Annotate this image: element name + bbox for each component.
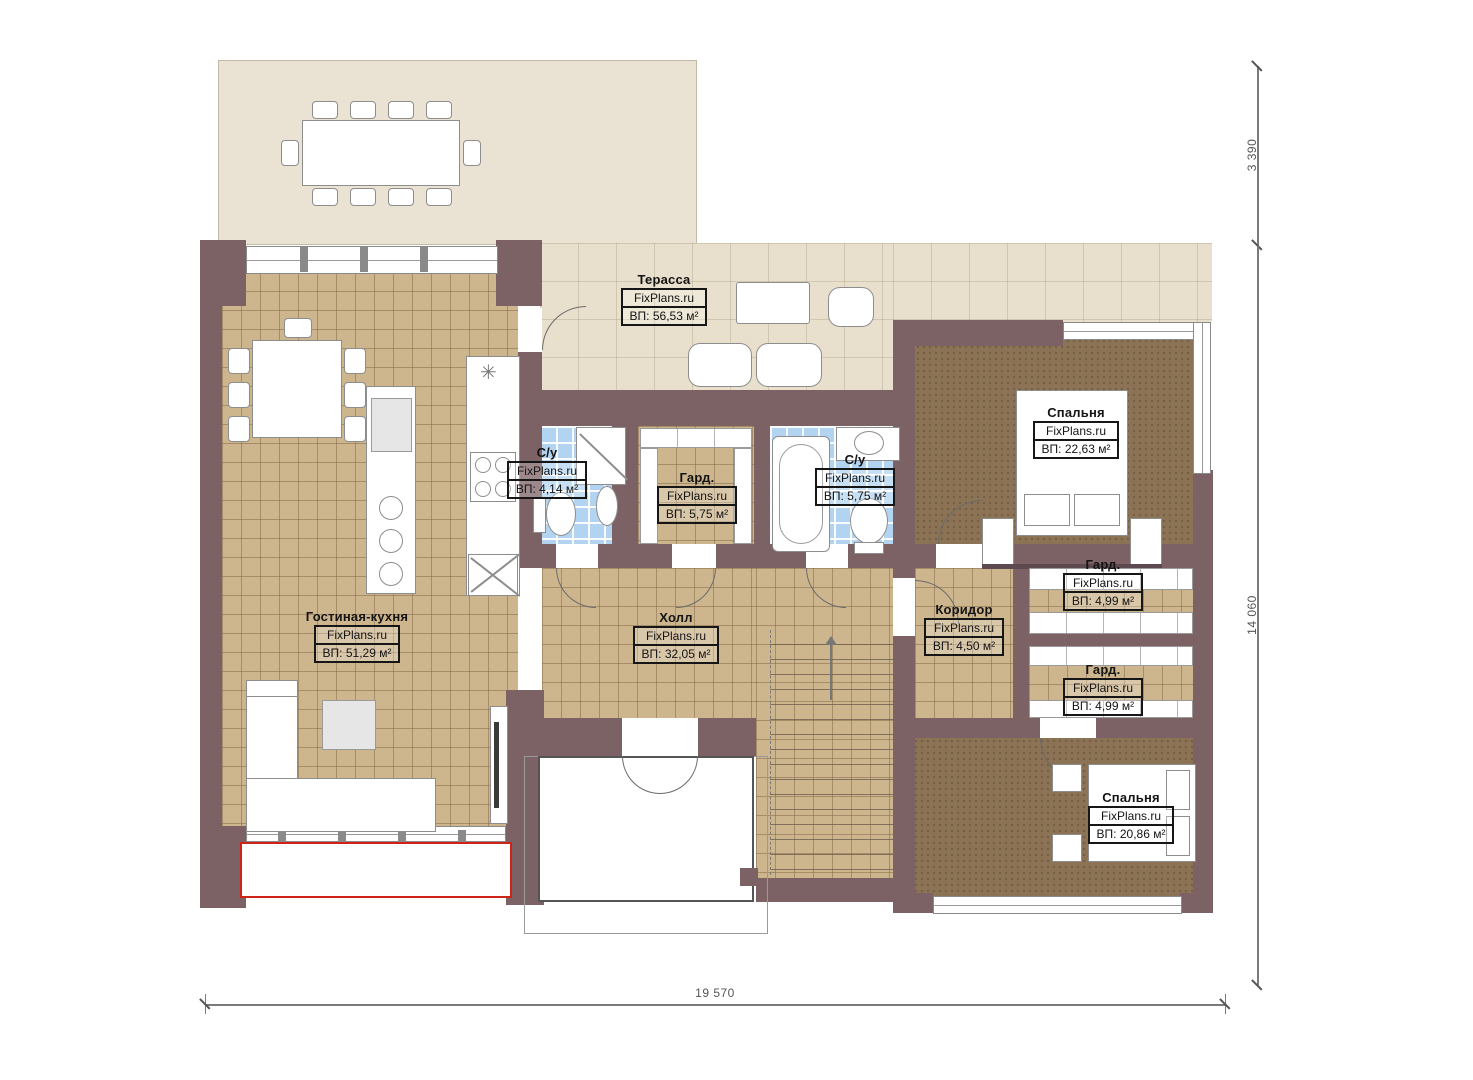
- wall: [893, 320, 1063, 346]
- island-sink: [379, 529, 403, 553]
- room-area: ВП: 22,63 м²: [1035, 441, 1118, 457]
- room-info-box: FixPlans.ru ВП: 4,50 м²: [924, 618, 1004, 656]
- stair-arrow-head: [825, 636, 837, 645]
- deck-chair: [426, 101, 452, 119]
- room-area: ВП: 20,86 м²: [1090, 826, 1173, 842]
- room-name: С/у: [501, 445, 593, 460]
- window-post: [360, 246, 368, 272]
- dimension-line-horizontal: [205, 1004, 1225, 1006]
- burner: [475, 457, 491, 473]
- room-name: Гард.: [648, 470, 746, 485]
- sofa-horizontal: [246, 778, 436, 832]
- x-mark: [471, 557, 521, 596]
- deck-chair: [312, 101, 338, 119]
- window-post: [300, 246, 308, 272]
- island-sink: [379, 496, 403, 520]
- room-name: Гостиная-кухня: [293, 609, 421, 624]
- staircase: [770, 630, 893, 875]
- x-mark: [471, 553, 521, 592]
- room-info-box: FixPlans.ru ВП: 5,75 м²: [815, 468, 895, 506]
- window-post: [420, 246, 428, 272]
- deck-chair: [312, 188, 338, 206]
- terrace-floor: [893, 243, 1212, 322]
- highlighted-window: [240, 842, 512, 898]
- deck-chair: [463, 140, 481, 166]
- window: [933, 896, 1182, 914]
- wall: [756, 878, 893, 902]
- room-label-wardrobe2: Гард. FixPlans.ru ВП: 4,99 м²: [1056, 662, 1150, 716]
- room-area: ВП: 4,50 м²: [926, 638, 1002, 654]
- watermark: FixPlans.ru: [316, 627, 399, 645]
- wall: [1029, 634, 1195, 646]
- room-label-hall: Холл FixPlans.ru ВП: 32,05 м²: [622, 610, 730, 664]
- watermark: FixPlans.ru: [509, 463, 585, 481]
- dining-chair: [228, 416, 250, 442]
- room-area: ВП: 51,29 м²: [316, 645, 399, 661]
- pillow: [1074, 494, 1120, 526]
- wall: [200, 240, 222, 908]
- deck-chair: [388, 101, 414, 119]
- terrace-seat: [756, 343, 822, 387]
- porch-post: [740, 868, 758, 886]
- wall: [893, 893, 933, 913]
- watermark: FixPlans.ru: [623, 290, 706, 308]
- room-name: Гард.: [1056, 662, 1150, 677]
- watermark: FixPlans.ru: [635, 628, 718, 646]
- window: [1193, 322, 1211, 474]
- deck-dining-table: [302, 120, 460, 186]
- room-name: Спальня: [1021, 405, 1131, 420]
- tv-unit: [490, 706, 508, 824]
- watermark: FixPlans.ru: [659, 488, 735, 506]
- room-name: Гард.: [1056, 557, 1150, 572]
- door-opening: [1040, 718, 1096, 738]
- watermark: FixPlans.ru: [1090, 808, 1173, 826]
- dining-chair: [228, 348, 250, 374]
- watermark: FixPlans.ru: [1065, 575, 1141, 593]
- window: [1063, 322, 1197, 340]
- nightstand: [982, 518, 1014, 566]
- window: [246, 246, 498, 274]
- toilet-tank: [854, 542, 884, 554]
- dimension-value: 3 390: [1245, 115, 1259, 195]
- deck-chair: [426, 188, 452, 206]
- nightstand: [1052, 764, 1082, 792]
- wall: [544, 718, 622, 756]
- room-area: ВП: 5,75 м²: [659, 506, 735, 522]
- pillow: [1024, 494, 1070, 526]
- deck-chair: [281, 140, 299, 166]
- room-label-bathroom2: С/у FixPlans.ru ВП: 5,75 м²: [806, 452, 904, 506]
- wardrobe-shelf: [640, 428, 752, 448]
- room-info-box: FixPlans.ru ВП: 20,86 м²: [1088, 806, 1175, 844]
- watermark: FixPlans.ru: [1065, 680, 1141, 698]
- room-info-box: FixPlans.ru ВП: 56,53 м²: [621, 288, 708, 326]
- dimension-value: 19 570: [655, 986, 775, 1000]
- room-label-living-kitchen: Гостиная-кухня FixPlans.ru ВП: 51,29 м²: [293, 609, 421, 663]
- room-label-bathroom1: С/у FixPlans.ru ВП: 4,14 м²: [501, 445, 593, 499]
- room-info-box: FixPlans.ru ВП: 51,29 м²: [314, 625, 401, 663]
- room-area: ВП: 56,53 м²: [623, 308, 706, 324]
- door-opening: [518, 308, 542, 352]
- room-area: ВП: 4,99 м²: [1065, 698, 1141, 714]
- room-name: Холл: [622, 610, 730, 625]
- wall: [1180, 893, 1213, 913]
- door-opening: [672, 544, 716, 568]
- door-opening: [556, 544, 598, 568]
- terrace-seat: [688, 343, 752, 387]
- sink: [596, 486, 618, 526]
- room-info-box: FixPlans.ru ВП: 4,99 м²: [1063, 573, 1143, 611]
- room-name: Спальня: [1076, 790, 1186, 805]
- dimension-value: 14 060: [1245, 575, 1259, 655]
- room-info-box: FixPlans.ru ВП: 4,14 м²: [507, 461, 587, 499]
- room-label-bedroom2: Спальня FixPlans.ru ВП: 20,86 м²: [1076, 790, 1186, 844]
- island-sink: [379, 562, 403, 586]
- room-name: С/у: [806, 452, 904, 467]
- deck-chair: [350, 101, 376, 119]
- watermark: FixPlans.ru: [926, 620, 1002, 638]
- wall: [1013, 568, 1029, 718]
- door-opening: [893, 578, 915, 636]
- coffee-table: [322, 700, 376, 750]
- wall: [496, 240, 542, 306]
- dining-chair: [344, 382, 366, 408]
- deck-chair: [350, 188, 376, 206]
- room-area: ВП: 4,99 м²: [1065, 593, 1141, 609]
- room-area: ВП: 32,05 м²: [635, 646, 718, 662]
- room-info-box: FixPlans.ru ВП: 5,75 м²: [657, 486, 737, 524]
- wall: [518, 390, 908, 426]
- stair-arrow-line: [830, 640, 832, 700]
- room-area: ВП: 4,14 м²: [509, 481, 585, 497]
- floor-plan: ✳ Терасса: [0, 0, 1473, 1080]
- burner: [475, 481, 491, 497]
- dining-chair: [284, 318, 312, 338]
- room-label-wardrobe1: Гард. FixPlans.ru ВП: 4,99 м²: [1056, 557, 1150, 611]
- room-label-corridor: Коридор FixPlans.ru ВП: 4,50 м²: [917, 602, 1011, 656]
- sink-unit: [468, 554, 518, 596]
- wardrobe-shelf: [1029, 612, 1193, 634]
- deck-chair: [388, 188, 414, 206]
- fridge: [371, 398, 412, 452]
- wall: [1193, 470, 1213, 910]
- wall: [200, 240, 246, 306]
- terrace-table: [736, 282, 810, 324]
- terrace-armchair: [828, 287, 874, 327]
- dining-chair: [344, 416, 366, 442]
- room-label-bedroom1: Спальня FixPlans.ru ВП: 22,63 м²: [1021, 405, 1131, 459]
- dining-chair: [344, 348, 366, 374]
- dining-chair: [228, 382, 250, 408]
- watermark: FixPlans.ru: [817, 470, 893, 488]
- dining-table: [252, 340, 342, 438]
- room-info-box: FixPlans.ru ВП: 22,63 м²: [1033, 421, 1120, 459]
- wall: [698, 718, 756, 756]
- watermark: FixPlans.ru: [1035, 423, 1118, 441]
- room-label-wardrobe-center: Гард. FixPlans.ru ВП: 5,75 м²: [648, 470, 746, 524]
- cooktop-star-icon: ✳: [480, 360, 497, 385]
- room-area: ВП: 5,75 м²: [817, 488, 893, 504]
- room-name: Коридор: [917, 602, 1011, 617]
- tv-screen: [494, 722, 499, 808]
- room-info-box: FixPlans.ru ВП: 4,99 м²: [1063, 678, 1143, 716]
- room-name: Терасса: [609, 272, 719, 287]
- toilet-tank: [533, 497, 546, 533]
- wall: [754, 426, 770, 546]
- room-info-box: FixPlans.ru ВП: 32,05 м²: [633, 626, 720, 664]
- room-label-terrace: Терасса FixPlans.ru ВП: 56,53 м²: [609, 272, 719, 326]
